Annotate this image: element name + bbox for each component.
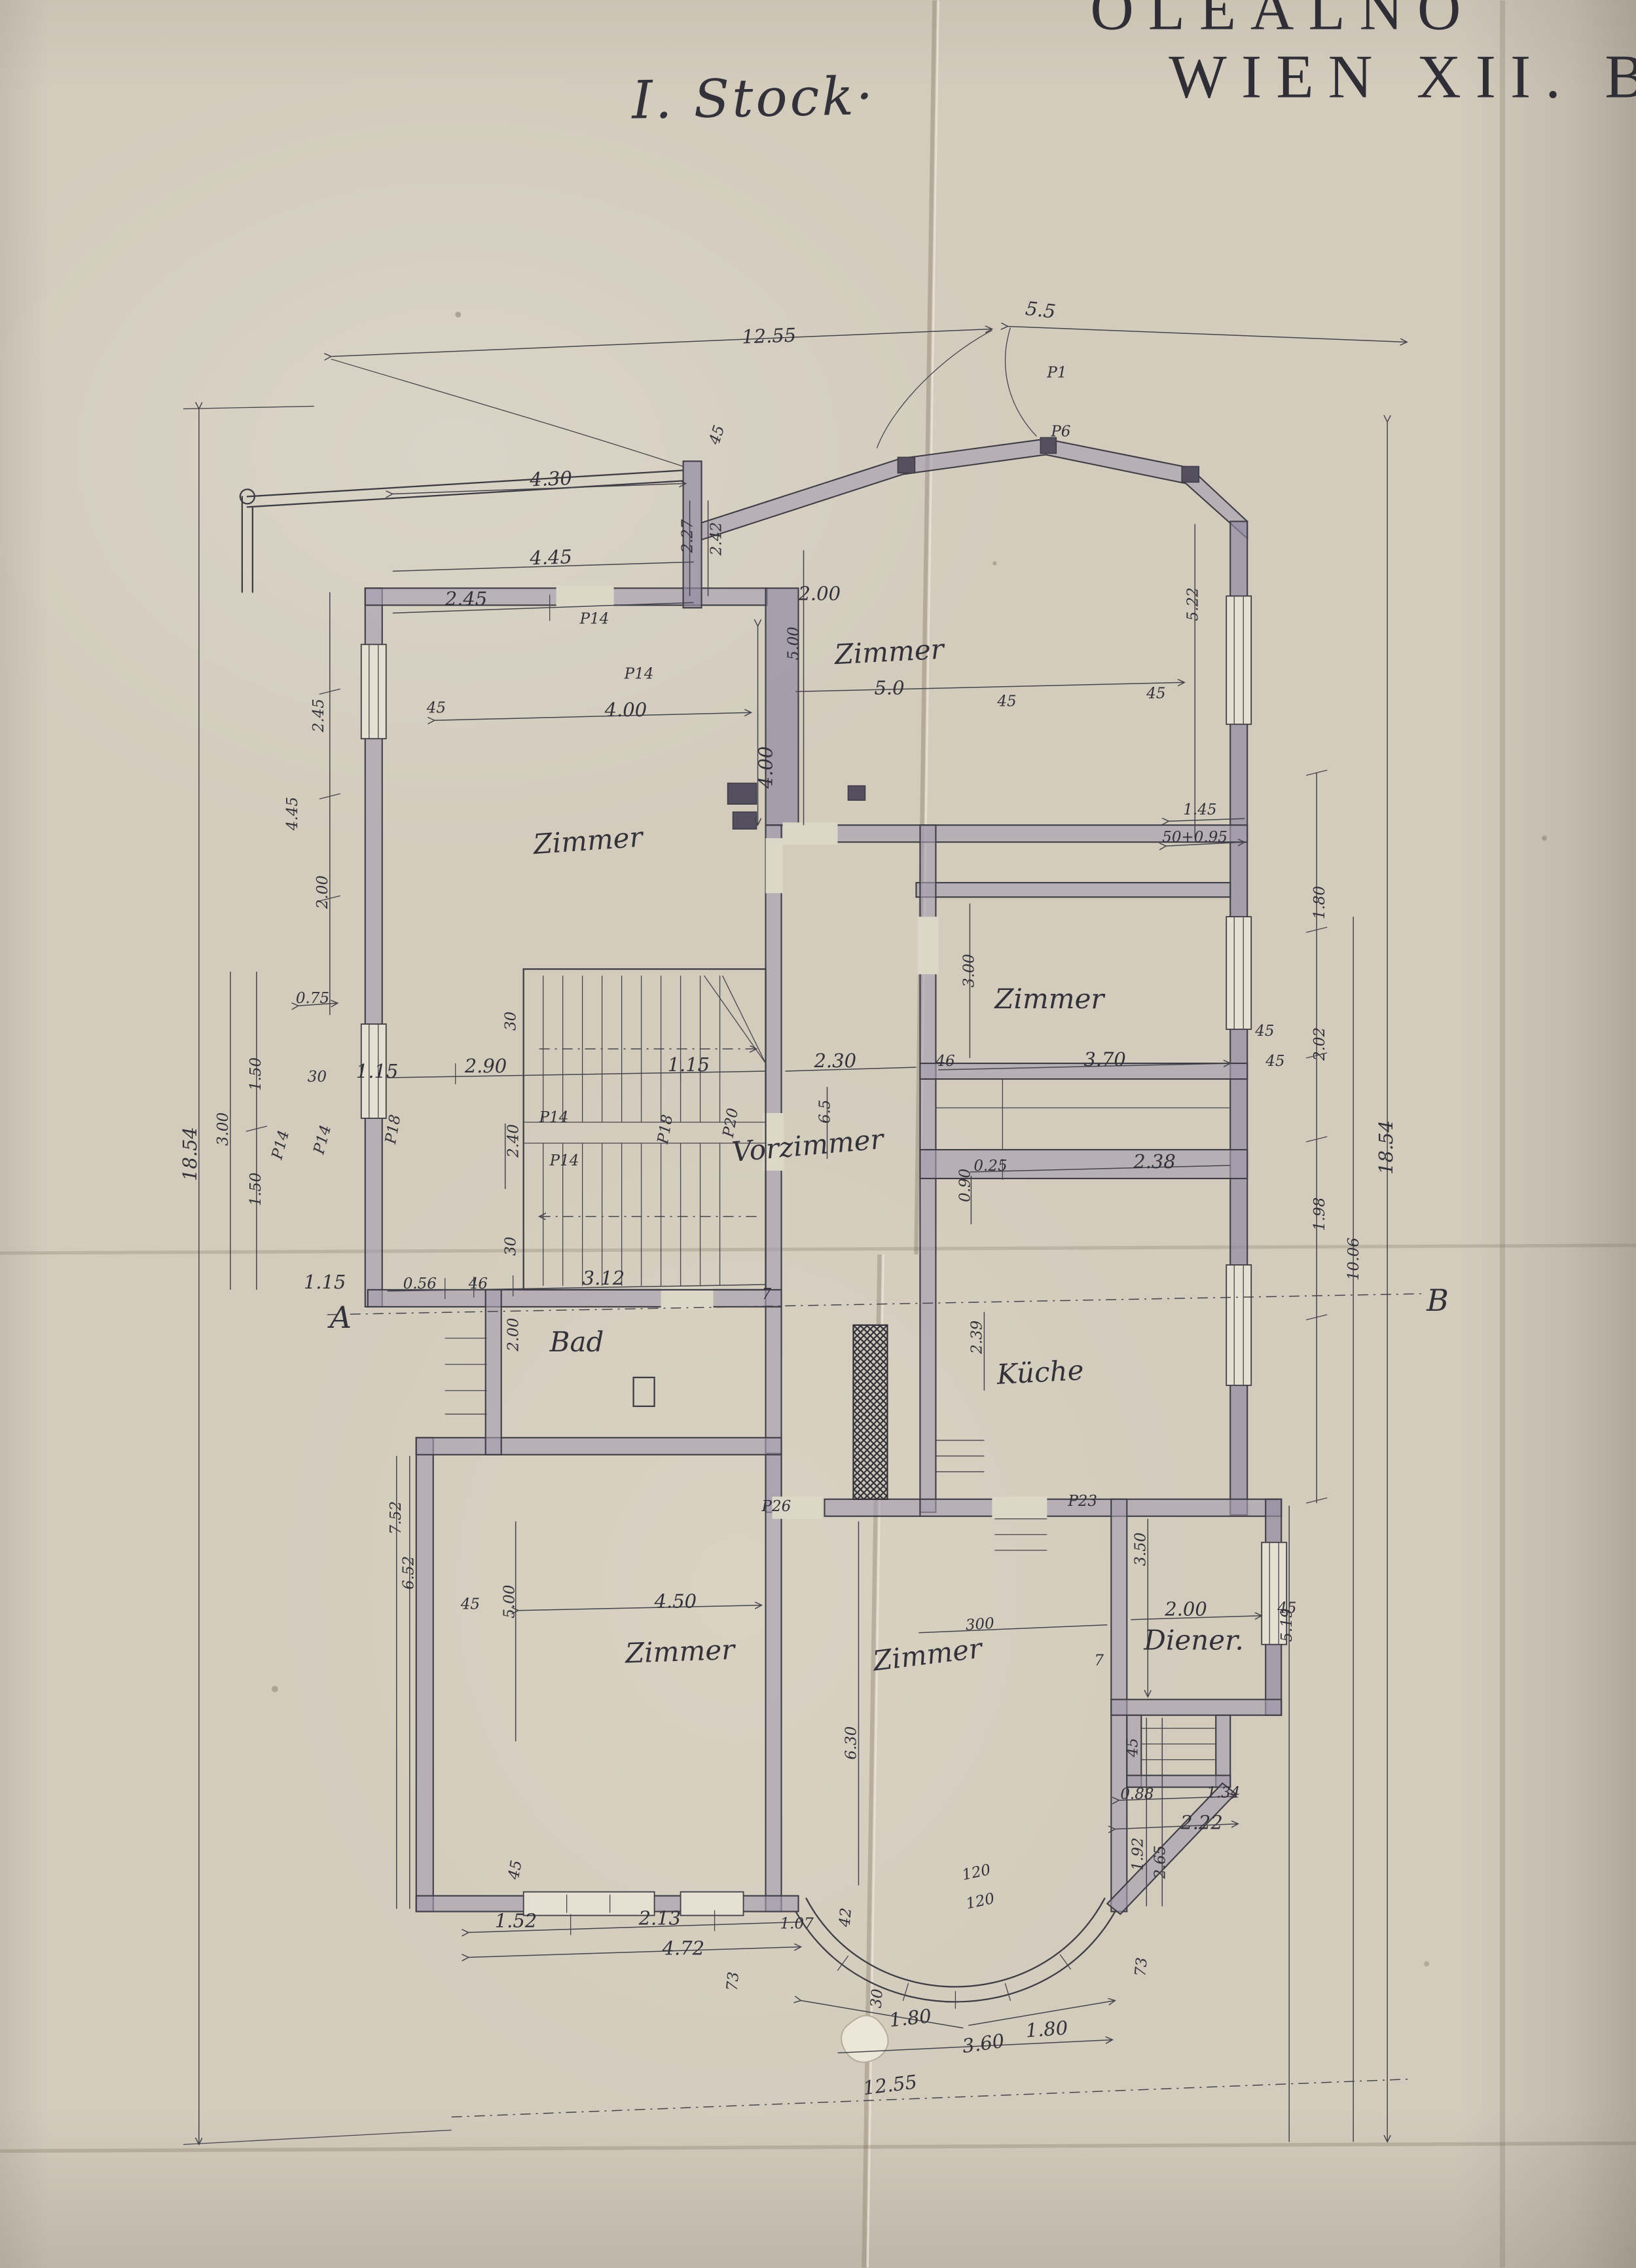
dim-closet: 0.90 xyxy=(956,1169,973,1202)
door-label: P14 xyxy=(549,1152,579,1169)
chimney-wall xyxy=(766,588,799,825)
dim-wall: 45 xyxy=(1254,1023,1274,1040)
room-label-zimmer-ne: Zimmer xyxy=(832,632,946,670)
wall-segment xyxy=(1111,1700,1281,1715)
bay-pier xyxy=(898,457,915,473)
walls-layer xyxy=(365,437,1281,1914)
window xyxy=(361,644,386,739)
paper-tear xyxy=(841,2015,888,2062)
dim-col: 2.45 xyxy=(310,699,327,733)
wall-segment xyxy=(916,883,1230,897)
dim-room: 5.0 xyxy=(874,676,904,699)
vent-shaft xyxy=(445,1338,487,1414)
wall-segment xyxy=(766,1454,782,1912)
room-bad xyxy=(503,1308,765,1436)
project-title-clipped: OLEALNO xyxy=(1090,0,1475,43)
dim-bay: 1.80 xyxy=(888,2005,933,2032)
dim-col: 0.75 xyxy=(296,990,329,1007)
dim-wall: 46 xyxy=(468,1275,488,1292)
floor-plan-svg: OLEALNO WIEN XII. BE I. Stock· xyxy=(0,0,1636,2268)
dim-col: 7.52 xyxy=(388,1501,405,1535)
dim-total-height-left: 18.54 xyxy=(179,1127,201,1181)
door-label: P14 xyxy=(268,1129,293,1162)
room-label-vorzimmer: Vorzimmer xyxy=(731,1123,886,1168)
room-terrace xyxy=(249,511,681,587)
dim-room: 3.70 xyxy=(1083,1048,1126,1070)
door-label: P6 xyxy=(1050,423,1070,440)
header: OLEALNO WIEN XII. BE I. Stock· xyxy=(630,0,1636,131)
door-opening xyxy=(783,822,838,845)
dim-bottom-right: 2.65 xyxy=(1152,1845,1169,1879)
dim-terrace: 2.00 xyxy=(798,582,841,604)
wall-segment xyxy=(416,1438,433,1912)
dim-right-col: 1.98 xyxy=(1311,1198,1328,1231)
door-opening xyxy=(556,585,614,608)
room-label-zimmer-sw: Zimmer xyxy=(623,1634,737,1670)
door-label: P14 xyxy=(624,665,654,682)
dim-wall: 45 xyxy=(1124,1738,1141,1757)
bay-pier xyxy=(1182,466,1199,482)
window xyxy=(1226,596,1251,724)
dim-wall: 45 xyxy=(1265,1053,1284,1070)
room-zimmer-s xyxy=(783,1519,1110,1893)
door-label: P14 xyxy=(579,610,609,627)
dim-col: 1.50 xyxy=(247,1173,264,1206)
dim-stairs: 2.90 xyxy=(464,1055,507,1077)
window xyxy=(1226,917,1251,1029)
dim-bad: 1.15 xyxy=(304,1271,346,1293)
dim-col: 6.52 xyxy=(401,1556,418,1590)
dim-room: 2.00 xyxy=(1164,1598,1207,1620)
dim-vorzimmer: 2.30 xyxy=(814,1050,857,1072)
dim-bottom-right: 0.88 xyxy=(1120,1786,1154,1803)
door-label: P1 xyxy=(1046,364,1066,381)
dim-window: 120 xyxy=(960,1861,992,1884)
door-opening xyxy=(766,838,783,893)
bay-window-wall xyxy=(702,439,1248,540)
dim-stairs: 1.15 xyxy=(356,1060,399,1082)
room-label-kueche: Küche xyxy=(995,1354,1084,1391)
dim-terrace-depth: 2.42 xyxy=(708,522,725,556)
door-label: P26 xyxy=(761,1498,791,1515)
dim-right-col: 1.80 xyxy=(1311,886,1328,919)
dim-wall: 45 xyxy=(706,423,728,447)
dim-window: 120 xyxy=(964,1890,996,1913)
door-label: P23 xyxy=(1067,1493,1097,1510)
dim-col: 1.50 xyxy=(247,1057,264,1091)
dim-right-col: 10.06 xyxy=(1345,1237,1362,1281)
project-location: WIEN XII. BE xyxy=(1169,43,1636,111)
dim-right-col: 5.19 xyxy=(1279,1609,1296,1642)
door-label: P14 xyxy=(539,1109,569,1126)
dim-closet: 0.25 xyxy=(973,1158,1007,1175)
dim-terrace: 4.30 xyxy=(529,467,573,490)
section-marker-b: B xyxy=(1426,1283,1449,1318)
dim-bad: 3.12 xyxy=(583,1267,625,1289)
dim-wall: 45 xyxy=(426,699,446,716)
dim-closet: 50+0.95 xyxy=(1162,829,1227,846)
closet-shelves xyxy=(936,1079,1230,1150)
dim-kueche: 2.39 xyxy=(968,1321,985,1355)
room-label-zimmer-s: Zimmer xyxy=(870,1632,986,1677)
dim-bay: 1.80 xyxy=(1025,2017,1068,2041)
wall-segment xyxy=(824,1499,920,1516)
bath-heater-icon xyxy=(634,1378,655,1406)
wall-segment xyxy=(416,1438,782,1455)
dim-bad: 2.00 xyxy=(505,1318,522,1352)
stove-icon xyxy=(733,812,757,829)
dim-wall: 46 xyxy=(935,1053,954,1070)
dim-wall: 45 xyxy=(460,1596,480,1613)
room-label-zimmer-nw: Zimmer xyxy=(531,820,645,860)
room-label-bad: Bad xyxy=(549,1326,604,1358)
dim-bottom-right: 1.34 xyxy=(1207,1785,1240,1802)
dim-wall: 45 xyxy=(996,693,1016,710)
dim-terrace-depth: 2.27 xyxy=(680,519,697,554)
dim-closet: 1.45 xyxy=(1183,801,1216,818)
window xyxy=(1226,1265,1251,1385)
dim-wall: 30 xyxy=(503,1237,520,1256)
dim-stairs: 2.40 xyxy=(505,1124,522,1158)
dim-wall: 30 xyxy=(503,1012,520,1031)
dim-wall: 7 xyxy=(762,1286,772,1303)
dim-room: 5.00 xyxy=(501,1585,518,1619)
dim-wall: 30 xyxy=(308,1069,327,1086)
dim-wall: 73 xyxy=(724,1971,742,1992)
dim-col: 4.45 xyxy=(284,797,301,831)
dim-room: 3.50 xyxy=(1132,1533,1149,1566)
room-zimmer-e xyxy=(937,900,1227,1061)
dim-col: 2.00 xyxy=(314,875,331,909)
terrace-parapet xyxy=(240,470,683,592)
dim-room: 5.22 xyxy=(1184,587,1201,621)
dim-bottom: 2.13 xyxy=(638,1907,682,1930)
dim-total-width-top: 12.55 xyxy=(742,324,797,348)
door-label: P14 xyxy=(310,1124,335,1157)
dim-bad: 0.56 xyxy=(403,1275,437,1292)
dim-wall: 45 xyxy=(1146,685,1165,702)
dim-terrace: 2.45 xyxy=(445,587,488,610)
dim-closet: 2.38 xyxy=(1133,1150,1176,1173)
dim-wall: 45 xyxy=(505,1859,526,1881)
door-label: P20 xyxy=(720,1107,742,1139)
door-opening xyxy=(917,917,938,974)
stove-icon xyxy=(848,786,865,800)
dim-vorzimmer: 6.5 xyxy=(816,1099,833,1124)
dim-wall: 30 xyxy=(868,1988,886,2009)
dim-room: 300 xyxy=(965,1615,995,1634)
dim-stairs: 1.15 xyxy=(668,1053,710,1076)
room-label-zimmer-e: Zimmer xyxy=(993,983,1106,1015)
wall-segment xyxy=(486,1290,501,1455)
dim-wall: 7 xyxy=(1094,1653,1104,1670)
section-marker-a: A xyxy=(327,1300,352,1335)
window xyxy=(524,1892,655,1916)
room-vorzimmer xyxy=(783,843,919,1495)
room-zimmer-sw xyxy=(435,1456,765,1893)
dim-bottom-right: 2.22 xyxy=(1180,1812,1223,1834)
dim-right-col: 2.02 xyxy=(1311,1027,1328,1061)
dim-terrace: 4.45 xyxy=(529,545,573,569)
dim-col: 3.00 xyxy=(215,1112,232,1146)
door-label: P18 xyxy=(655,1113,677,1146)
dim-bottom: 4.72 xyxy=(662,1937,705,1959)
wall-segment xyxy=(920,1499,1281,1516)
dim-wall: 42 xyxy=(836,1907,855,1928)
dim-bottom-right: 1.92 xyxy=(1129,1837,1146,1871)
dim-room: 3.00 xyxy=(960,954,977,987)
window xyxy=(681,1892,744,1916)
stove-icon xyxy=(728,783,757,804)
dim-wall: 73 xyxy=(1132,1957,1150,1977)
dim-room: 5.00 xyxy=(786,627,803,660)
blueprint-sheet: OLEALNO WIEN XII. BE I. Stock· xyxy=(0,0,1636,2268)
dim-room: 6.30 xyxy=(843,1726,860,1759)
room-label-diener: Diener. xyxy=(1143,1624,1244,1656)
dim-room: 4.00 xyxy=(755,746,777,790)
door-opening xyxy=(992,1497,1047,1519)
dim-bottom: 1.52 xyxy=(495,1910,537,1932)
floor-title: I. Stock· xyxy=(630,65,876,131)
dim-total-height-right: 18.54 xyxy=(1375,1120,1397,1175)
chimney-flue xyxy=(853,1325,887,1499)
dim-room: 4.50 xyxy=(654,1590,697,1613)
dim-bay-top: 5.5 xyxy=(1025,297,1057,323)
dim-room: 4.00 xyxy=(604,699,647,721)
dim-bay: 3.60 xyxy=(961,2030,1006,2058)
dim-bottom: 1.07 xyxy=(780,1916,814,1933)
